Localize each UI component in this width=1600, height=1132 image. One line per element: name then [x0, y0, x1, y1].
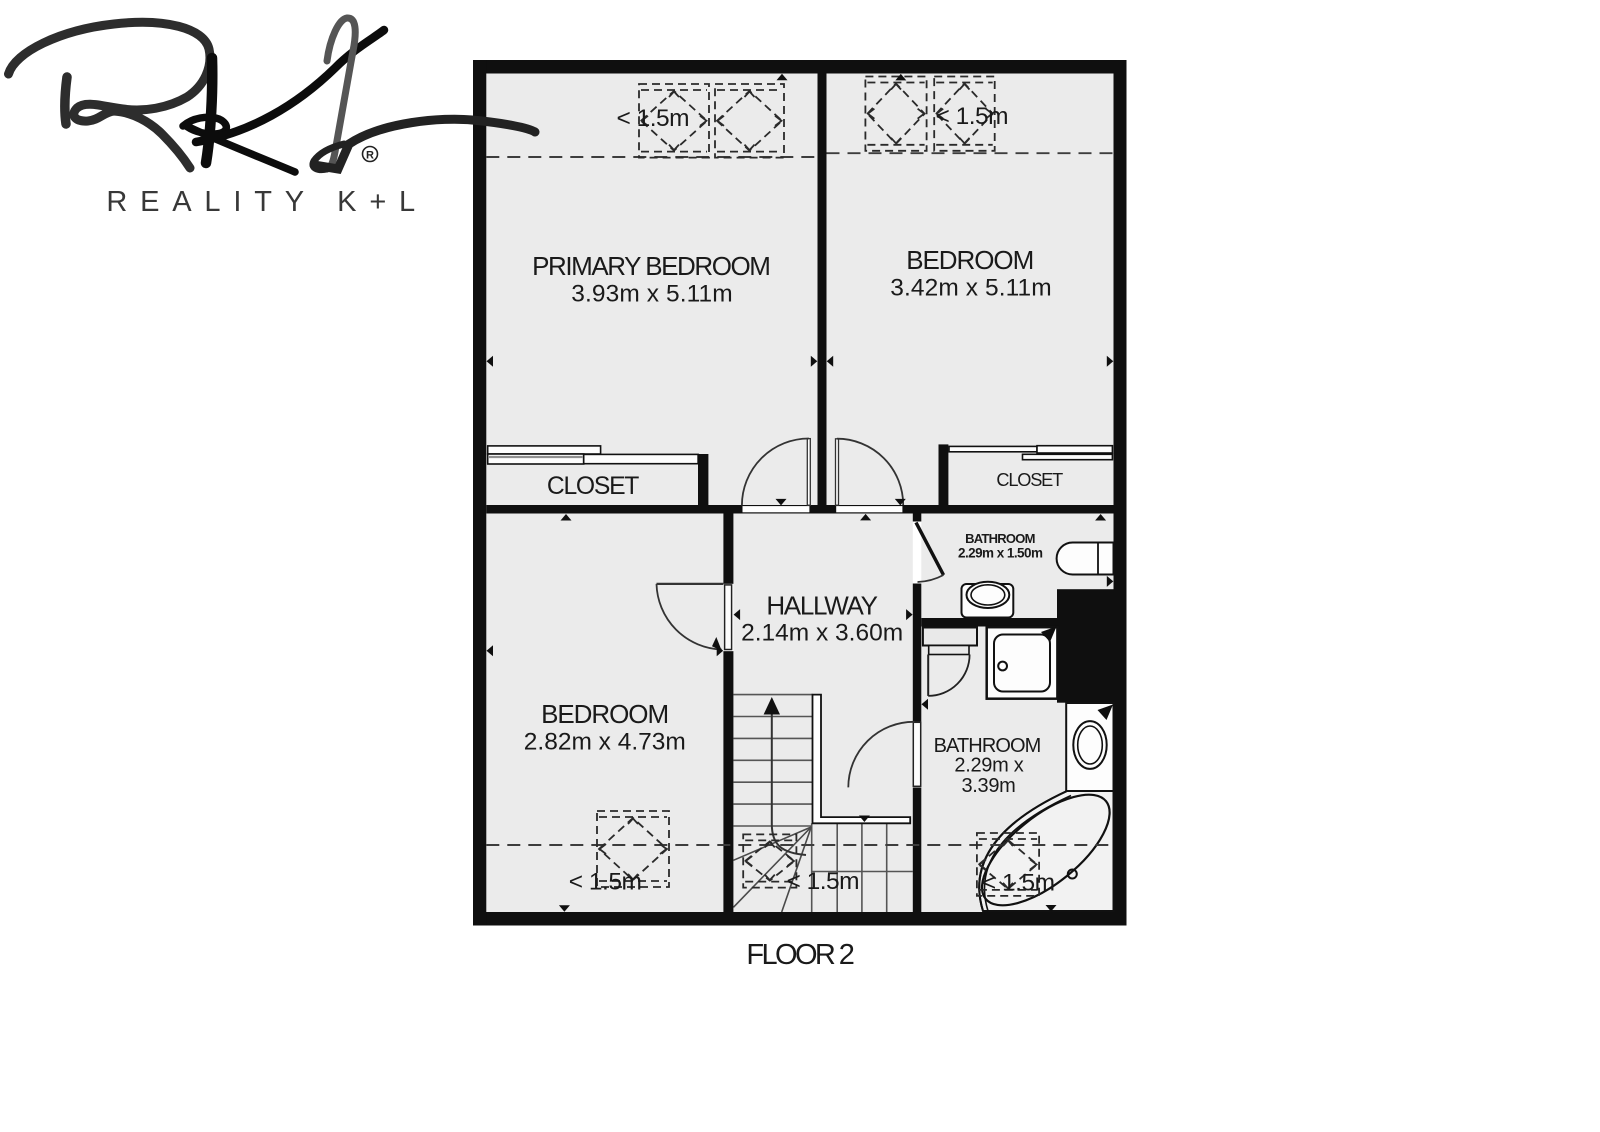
svg-text:2.14m x 3.60m: 2.14m x 3.60m	[741, 620, 903, 647]
svg-text:< 1.5m: < 1.5m	[569, 869, 642, 896]
svg-text:< 1.5m: < 1.5m	[787, 868, 860, 895]
svg-text:2.29m x: 2.29m x	[954, 755, 1023, 777]
svg-text:< 1.5m: < 1.5m	[617, 105, 690, 132]
svg-text:REALITY K+L: REALITY K+L	[106, 186, 428, 218]
svg-text:< 1.5m: < 1.5m	[982, 869, 1055, 896]
svg-text:< 1.5m: < 1.5m	[936, 103, 1009, 130]
svg-text:BEDROOM: BEDROOM	[906, 245, 1033, 275]
svg-text:3.42m x 5.11m: 3.42m x 5.11m	[890, 275, 1052, 302]
svg-text:FLOOR 2: FLOOR 2	[746, 939, 853, 971]
svg-text:3.93m x 5.11m: 3.93m x 5.11m	[571, 281, 733, 308]
svg-text:CLOSET: CLOSET	[996, 470, 1063, 490]
svg-text:2.29m x 1.50m: 2.29m x 1.50m	[958, 546, 1043, 561]
svg-text:BEDROOM: BEDROOM	[541, 699, 668, 729]
svg-text:3.39m: 3.39m	[961, 775, 1015, 797]
svg-text:CLOSET: CLOSET	[547, 473, 639, 500]
svg-text:PRIMARY BEDROOM: PRIMARY BEDROOM	[532, 251, 769, 281]
svg-text:2.82m x 4.73m: 2.82m x 4.73m	[524, 729, 686, 756]
svg-text:R: R	[366, 150, 374, 162]
svg-text:BATHROOM: BATHROOM	[965, 531, 1035, 546]
svg-text:HALLWAY: HALLWAY	[766, 591, 877, 621]
